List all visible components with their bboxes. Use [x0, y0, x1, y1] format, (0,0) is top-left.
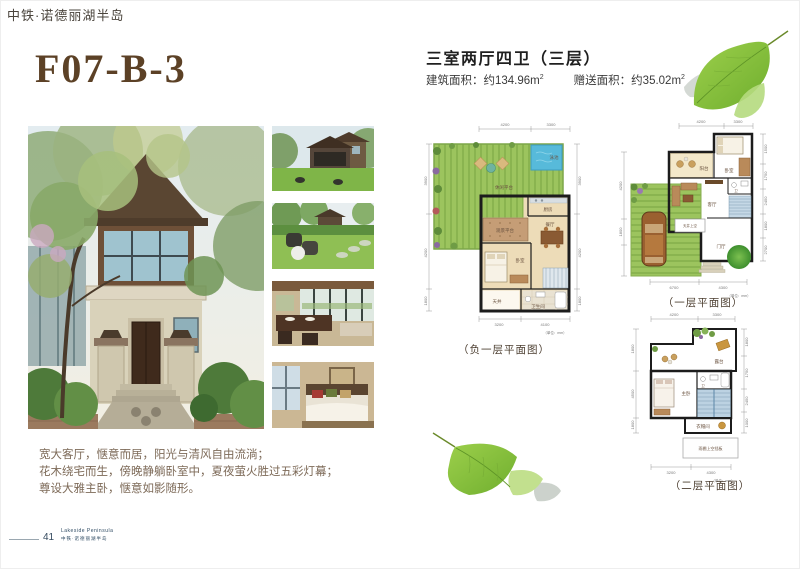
dim-label: 4200	[670, 312, 680, 317]
plan-label-second: （二层平面图）	[629, 478, 791, 493]
room-label-canopy: 雨棚上空挡板	[699, 445, 723, 451]
room-label-bedroom: 卧室	[516, 257, 525, 264]
dim-label: 1750	[744, 368, 749, 378]
room-label-master: 主卧	[682, 390, 691, 397]
dim-label: 1500	[763, 144, 768, 154]
leaf-decoration-top-right	[664, 27, 798, 123]
description-line: 花木绕宅而生，傍晚静躺卧室中，夏夜萤火胜过五彩灯幕；	[39, 464, 338, 481]
dim-label: 3900	[424, 176, 428, 186]
room-label-dining: 餐厅	[546, 221, 555, 228]
room-label-platform: 观景平台	[496, 227, 514, 234]
dim-label: 1800	[424, 296, 428, 306]
built-area-text: 建筑面积：约134.96m	[426, 75, 540, 87]
room-label-foyer: 门厅	[717, 243, 726, 250]
room-label-bath: 卫生间	[531, 303, 545, 310]
dim-label: 4200	[424, 248, 428, 258]
dim-label: 1800	[618, 227, 623, 237]
leaf-decoration-bottom	[425, 431, 565, 507]
page-number: 41	[43, 532, 54, 543]
dim-label: 1800	[763, 221, 768, 231]
dim-label: 4200	[577, 248, 582, 258]
brand-header: 中铁·诺德丽湖半岛	[7, 5, 124, 24]
dim-label: 3300	[547, 122, 557, 127]
dim-label: 4300	[719, 285, 729, 290]
room-label-cloak: 衣帽间	[696, 423, 710, 430]
room-label-living: 客厅	[708, 201, 717, 208]
dim-label: 1000	[744, 418, 749, 428]
dim-label: 3300	[734, 119, 744, 124]
room-label-balcony: 阳台	[700, 165, 709, 172]
room-label-bath: 卫	[701, 384, 705, 388]
dim-label: 1800	[630, 344, 635, 354]
brand-logo-en: Lakeside Peninsula	[61, 529, 113, 534]
dim-label: 2450	[763, 196, 768, 206]
room-label-kitchen: 厨房	[544, 206, 553, 213]
room-label-pool: 泳池	[550, 154, 559, 161]
dim-label: 1800	[577, 296, 582, 306]
dim-label: 4200	[618, 181, 623, 191]
brand-logo: Lakeside Peninsula 中铁·诺德丽湖半岛	[61, 529, 113, 541]
room-label-patio-void: 天井上空	[683, 223, 697, 228]
brochure-page: 中铁·诺德丽湖半岛 F07-B-3	[0, 0, 800, 569]
room-label-bath: 卫	[734, 189, 738, 193]
description-line: 尊设大雅主卧，惬意如影随形。	[39, 481, 338, 498]
unit-layout-title: 三室两厅四卫（三层）	[426, 45, 601, 69]
description-line: 宽大客厅，惬意而居，阳光与清风自由流淌；	[39, 447, 338, 464]
dim-label: 4200	[501, 122, 511, 127]
dim-label: 3900	[577, 176, 582, 186]
dim-label: 6700	[670, 285, 680, 290]
area-info: 建筑面积：约134.96m2赠送面积：约35.02m2	[426, 72, 685, 88]
dim-label: 4200	[697, 119, 707, 124]
dim-label: 3300	[713, 312, 723, 317]
dim-label: 1800	[630, 420, 635, 430]
dim-label: 1750	[763, 171, 768, 181]
dim-label: 2700	[763, 245, 768, 255]
room-label-patio: 天井	[493, 298, 502, 305]
brand-logo-cn: 中铁·诺德丽湖半岛	[61, 536, 113, 541]
thumb-photo-garden	[272, 203, 374, 269]
room-label-terrace: 露台	[715, 358, 724, 365]
unit-note: （单位：mm）	[543, 330, 566, 335]
dim-label: 4100	[541, 322, 551, 327]
unit-code-title: F07-B-3	[35, 45, 187, 92]
dim-label: 3200	[667, 470, 677, 475]
room-label-garden: 休闲平台	[495, 184, 513, 191]
dim-label: 4500	[630, 389, 635, 399]
description-paragraph: 宽大客厅，惬意而居，阳光与清风自由流淌； 花木绕宅而生，傍晚静躺卧室中，夏夜萤火…	[39, 447, 338, 498]
built-area-sup: 2	[540, 74, 544, 81]
dim-label: 2450	[744, 396, 749, 406]
plan-label-basement: （负一层平面图）	[424, 342, 584, 357]
dim-label: 1800	[744, 337, 749, 347]
footer-divider	[9, 539, 39, 540]
thumb-photo-dining-interior	[272, 281, 374, 346]
room-label-bedroom: 卧室	[725, 167, 734, 174]
main-villa-photo	[28, 126, 264, 429]
floor-plan-first: 4200 3300 阳台 卧室 卫	[617, 114, 789, 314]
plan-label-first: （一层平面图）	[617, 295, 789, 310]
floor-plan-basement: 4200 3300 泳池 休闲平台 观景平台 厨房 餐厅	[424, 119, 584, 359]
thumb-photo-bedroom	[272, 362, 374, 428]
dim-label: 3200	[495, 322, 505, 327]
dim-label: 4300	[707, 470, 717, 475]
thumb-photo-villa-pavilion	[272, 126, 374, 191]
